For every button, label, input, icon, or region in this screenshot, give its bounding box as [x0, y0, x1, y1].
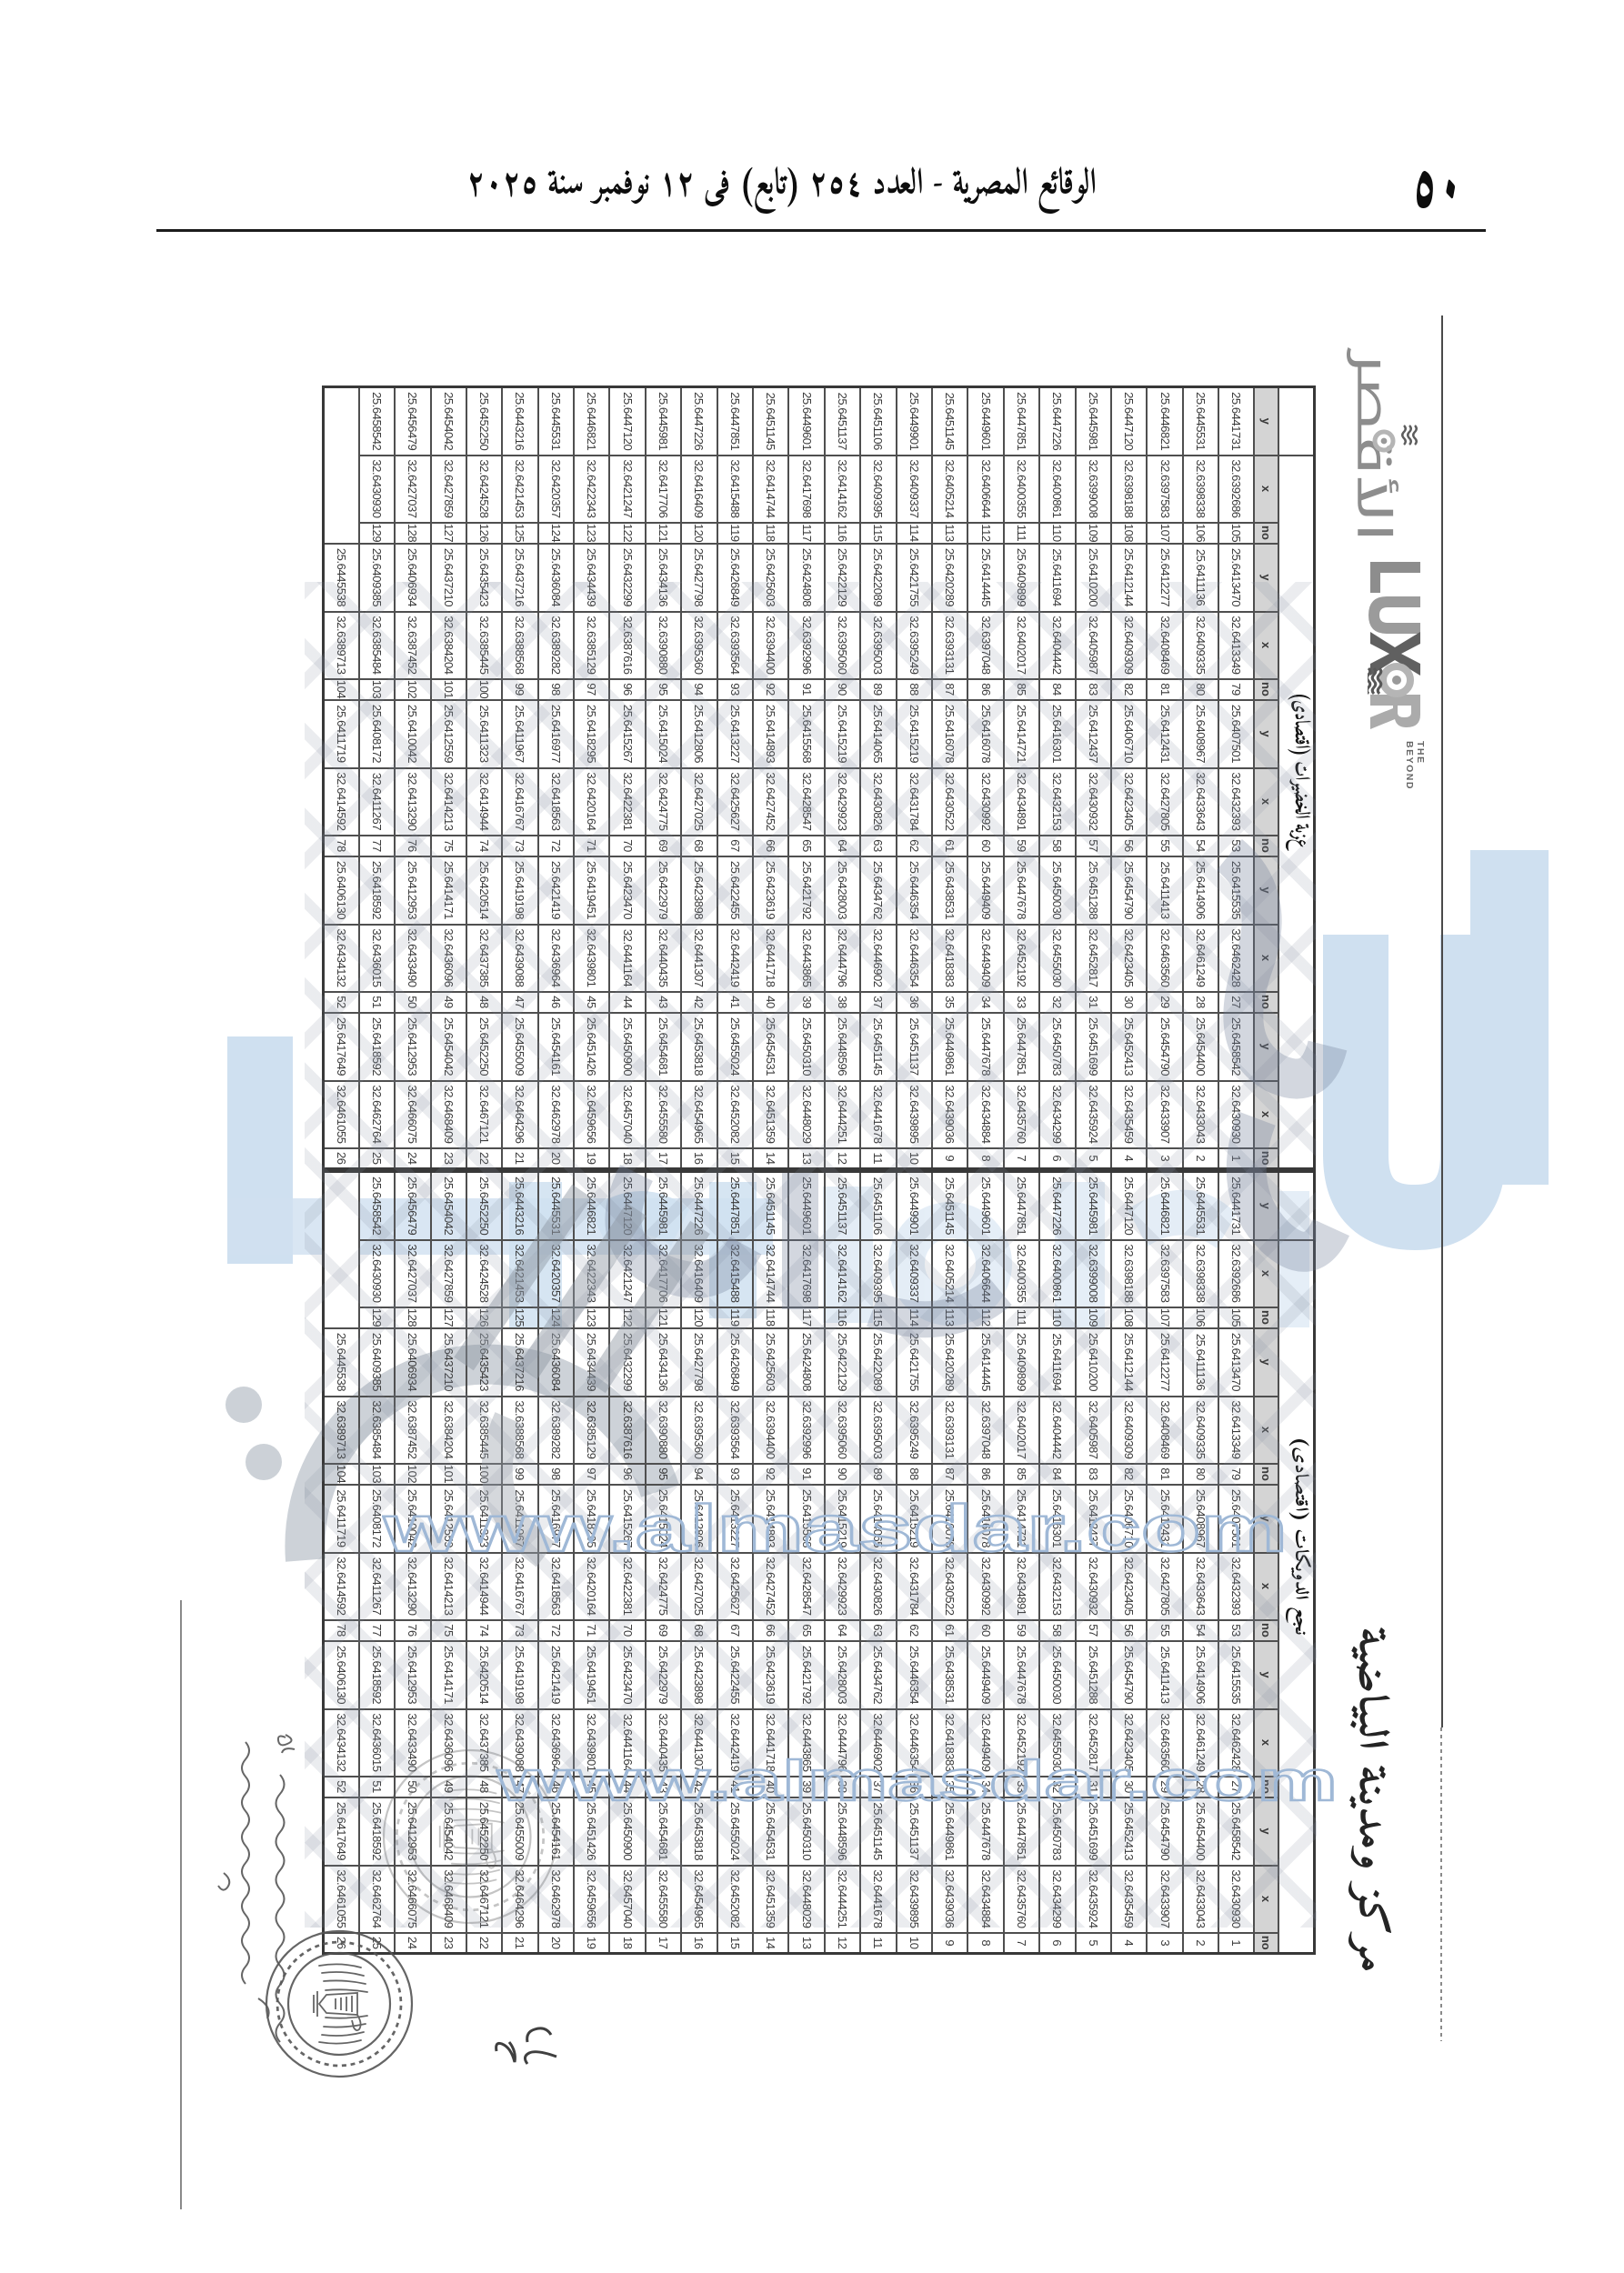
svg-text:www.almasdar.com: www.almasdar.com [496, 1750, 1338, 1813]
svg-text:www.almasdar.com: www.almasdar.com [383, 1493, 1288, 1566]
